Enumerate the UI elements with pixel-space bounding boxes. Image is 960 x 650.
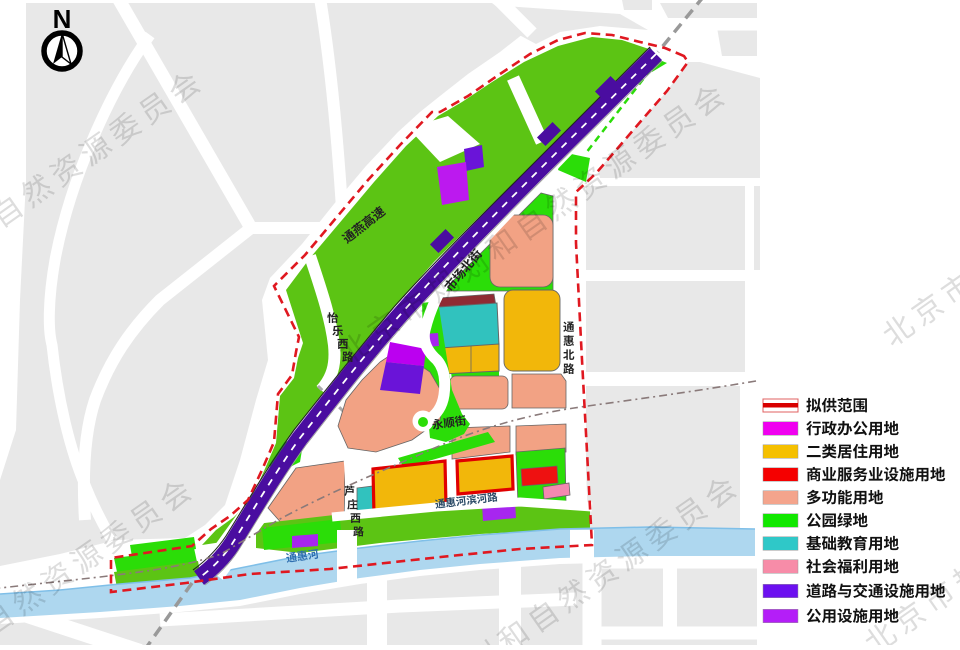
svg-text:N: N [53,4,72,34]
